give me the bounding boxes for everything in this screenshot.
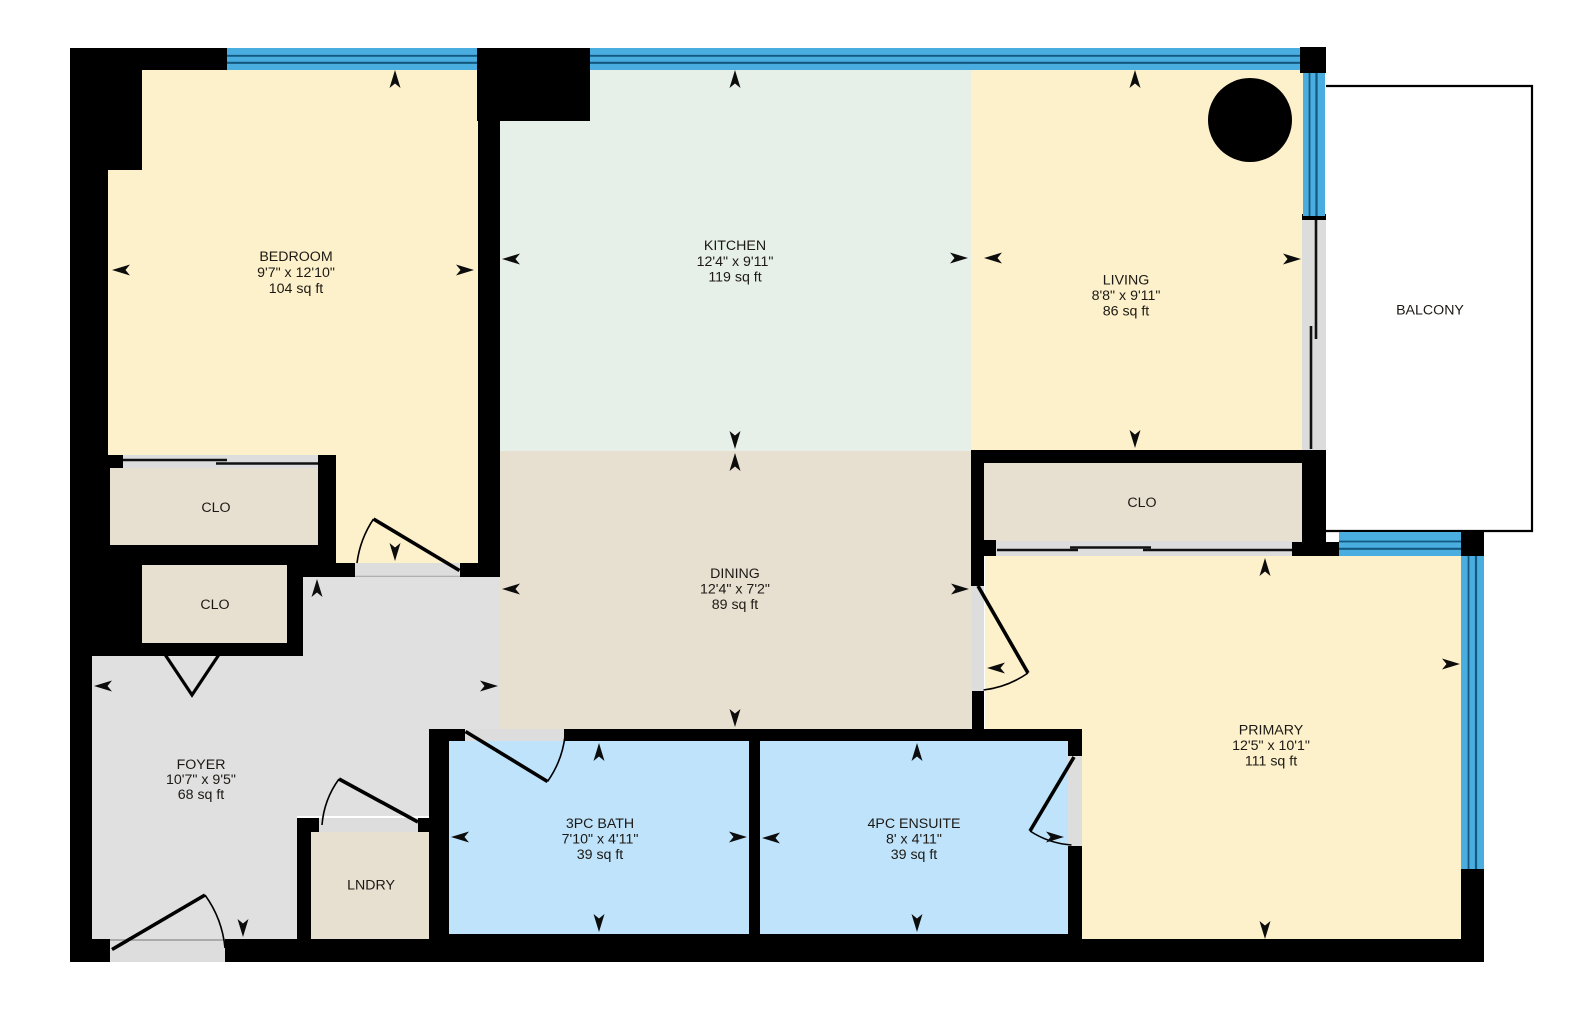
svg-text:4PC ENSUITE: 4PC ENSUITE [867,816,960,832]
svg-text:89 sq ft: 89 sq ft [712,597,759,613]
svg-text:8'8" x 9'11": 8'8" x 9'11" [1092,288,1161,304]
svg-text:111 sq ft: 111 sq ft [1245,754,1297,770]
svg-text:DINING: DINING [710,566,760,582]
svg-text:119 sq ft: 119 sq ft [708,270,761,286]
svg-text:12'4" x 9'11": 12'4" x 9'11" [697,254,774,270]
svg-text:39 sq ft: 39 sq ft [891,847,938,863]
svg-text:86 sq ft: 86 sq ft [1103,304,1150,320]
svg-text:CLO: CLO [200,597,229,613]
svg-text:LIVING: LIVING [1103,273,1150,289]
svg-text:3PC BATH: 3PC BATH [566,816,634,832]
svg-text:CLO: CLO [1127,495,1156,511]
svg-text:9'7" x 12'10": 9'7" x 12'10" [257,265,335,281]
svg-text:12'4" x 7'2": 12'4" x 7'2" [700,582,770,598]
svg-text:BEDROOM: BEDROOM [259,249,332,265]
svg-text:LNDRY: LNDRY [347,878,395,894]
svg-text:39 sq ft: 39 sq ft [577,847,624,863]
svg-text:68 sq ft: 68 sq ft [178,787,225,803]
svg-text:104 sq ft: 104 sq ft [269,281,323,297]
svg-text:FOYER: FOYER [177,757,226,773]
svg-text:8' x 4'11": 8' x 4'11" [886,832,942,848]
svg-text:PRIMARY: PRIMARY [1239,723,1304,739]
svg-text:7'10" x 4'11": 7'10" x 4'11" [562,832,639,848]
svg-text:BALCONY: BALCONY [1396,303,1464,319]
svg-text:KITCHEN: KITCHEN [704,238,766,254]
svg-text:10'7" x 9'5": 10'7" x 9'5" [166,772,236,788]
svg-text:CLO: CLO [201,500,230,516]
svg-text:12'5" x 10'1": 12'5" x 10'1" [1232,738,1310,754]
